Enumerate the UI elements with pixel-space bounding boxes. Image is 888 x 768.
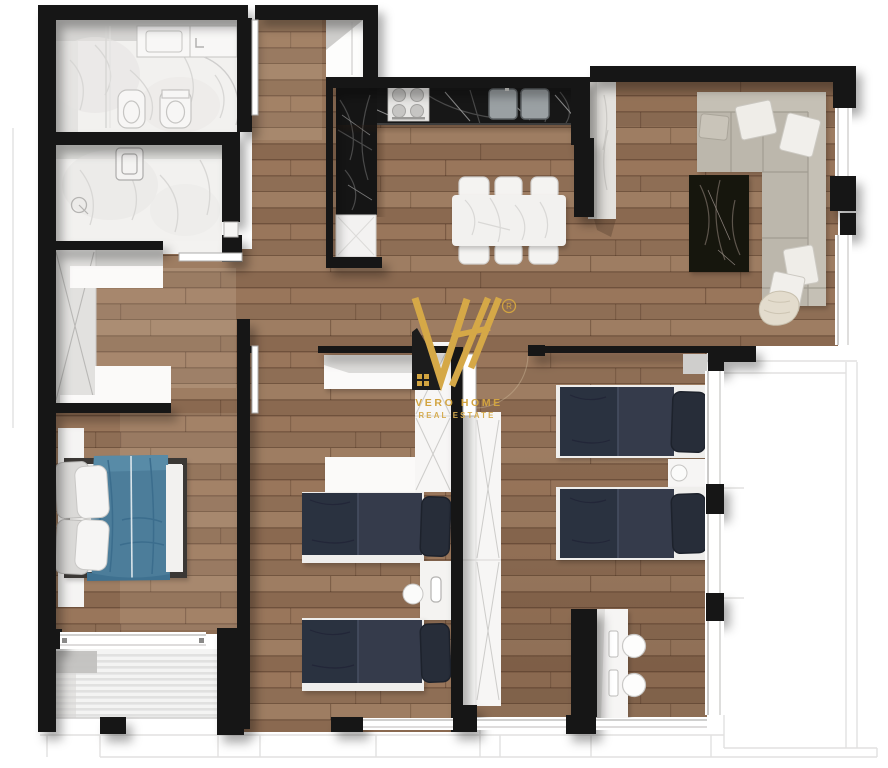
svg-text:VERO HOME: VERO HOME xyxy=(415,397,503,409)
svg-text:R: R xyxy=(506,302,512,311)
svg-text:REAL ESTATE: REAL ESTATE xyxy=(418,411,495,420)
